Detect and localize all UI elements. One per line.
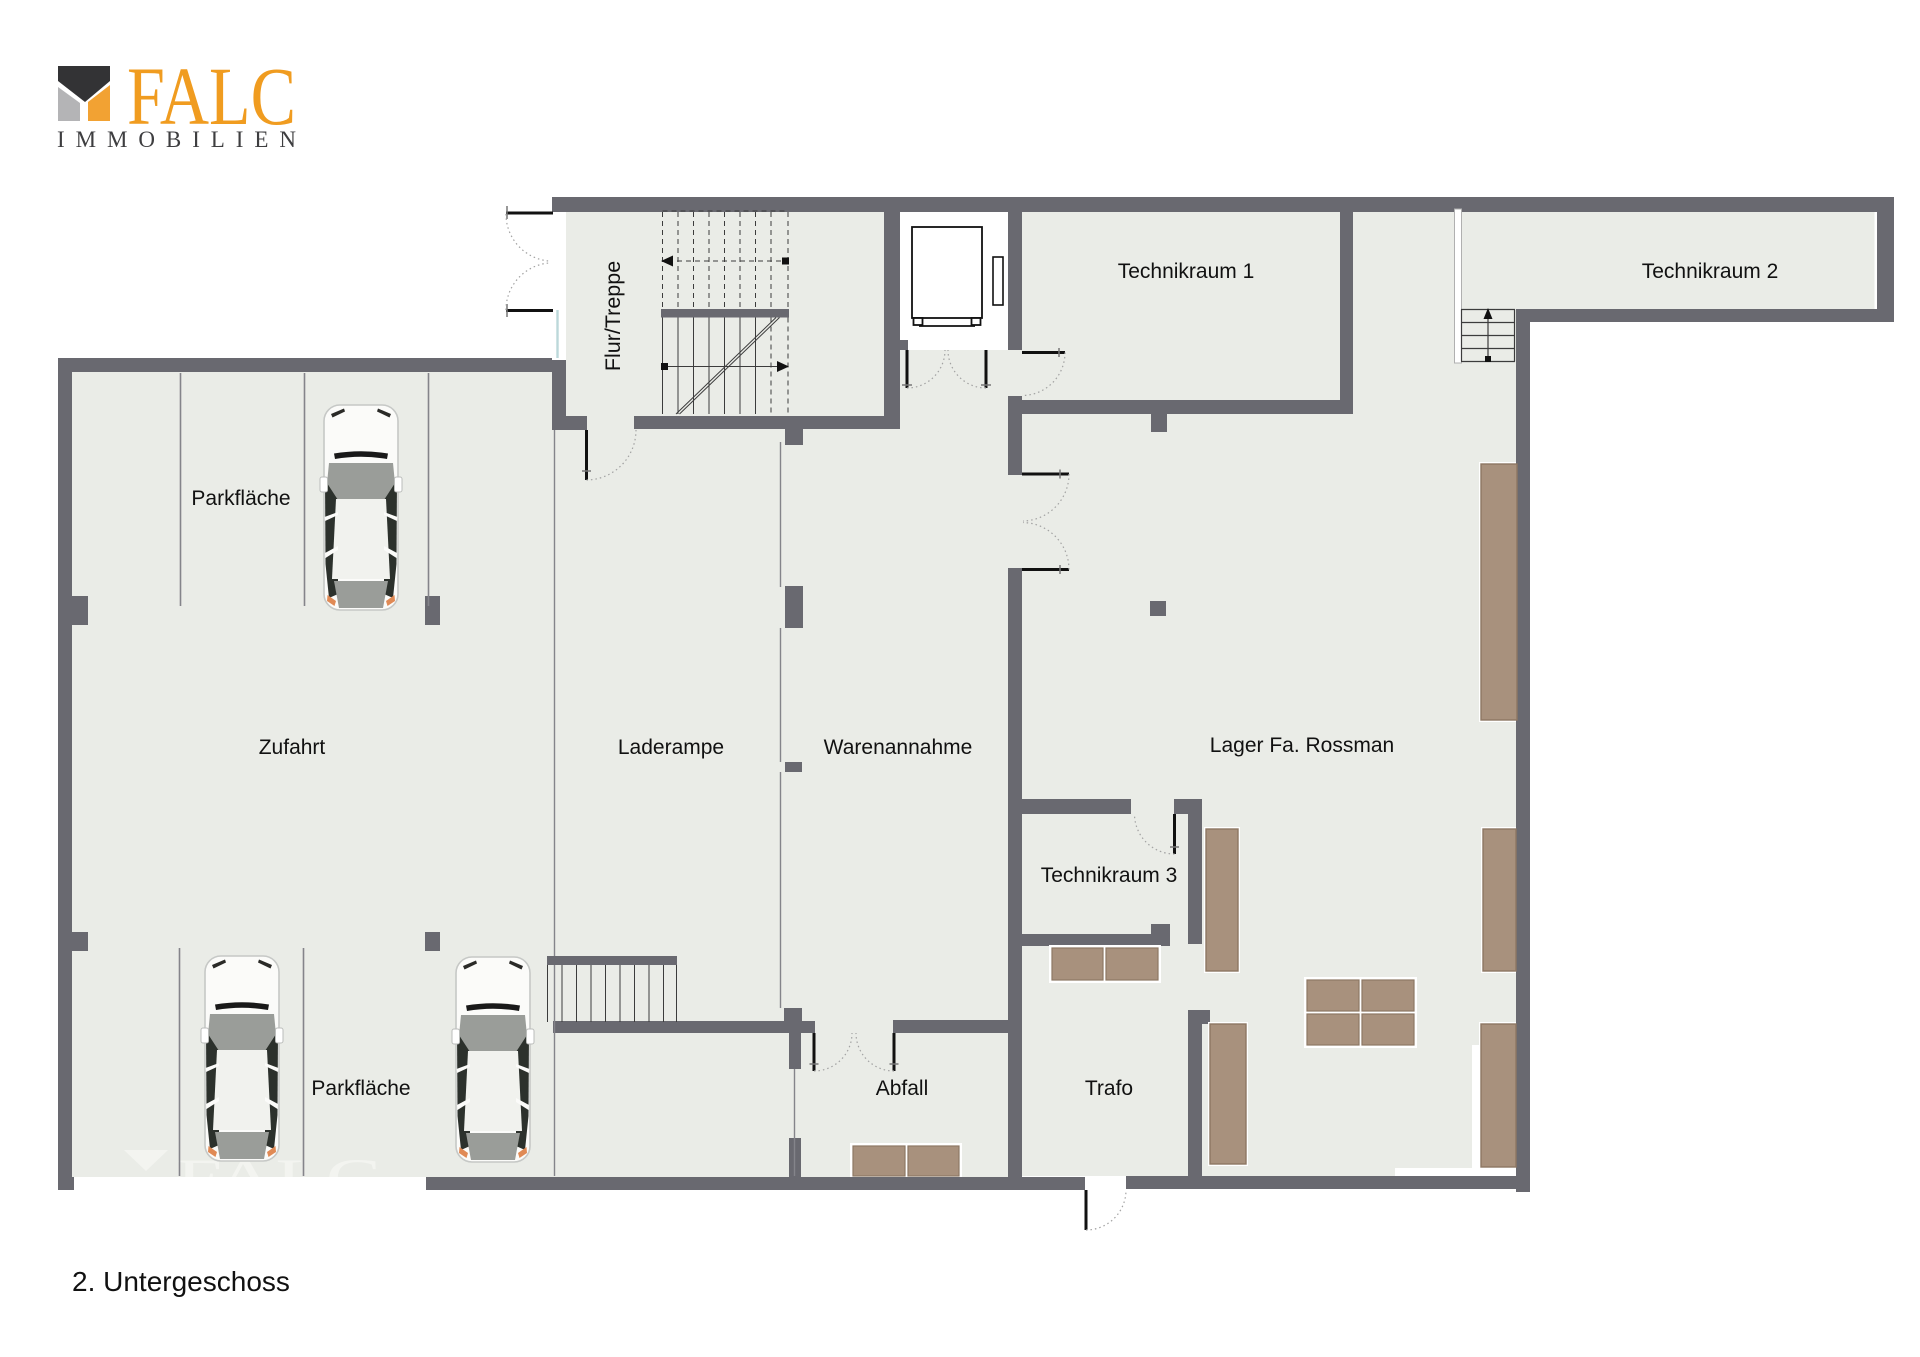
svg-text:2. Untergeschoss: 2. Untergeschoss xyxy=(72,1266,290,1297)
svg-text:Trafo: Trafo xyxy=(1085,1077,1133,1100)
svg-text:Technikraum 2: Technikraum 2 xyxy=(1642,260,1779,283)
svg-text:Parkfläche: Parkfläche xyxy=(311,1077,410,1100)
svg-text:Abfall: Abfall xyxy=(876,1077,929,1100)
svg-text:Warenannahme: Warenannahme xyxy=(824,736,973,759)
svg-text:Lager Fa. Rossman: Lager Fa. Rossman xyxy=(1210,734,1394,757)
svg-text:Laderampe: Laderampe xyxy=(618,736,724,759)
svg-text:IMMOBILIEN: IMMOBILIEN xyxy=(57,127,296,152)
svg-text:Technikraum 1: Technikraum 1 xyxy=(1118,260,1255,283)
svg-text:Zufahrt: Zufahrt xyxy=(259,736,326,759)
svg-text:Parkfläche: Parkfläche xyxy=(191,487,290,510)
svg-text:Flur/Treppe: Flur/Treppe xyxy=(601,261,625,371)
svg-text:Technikraum 3: Technikraum 3 xyxy=(1041,864,1178,887)
